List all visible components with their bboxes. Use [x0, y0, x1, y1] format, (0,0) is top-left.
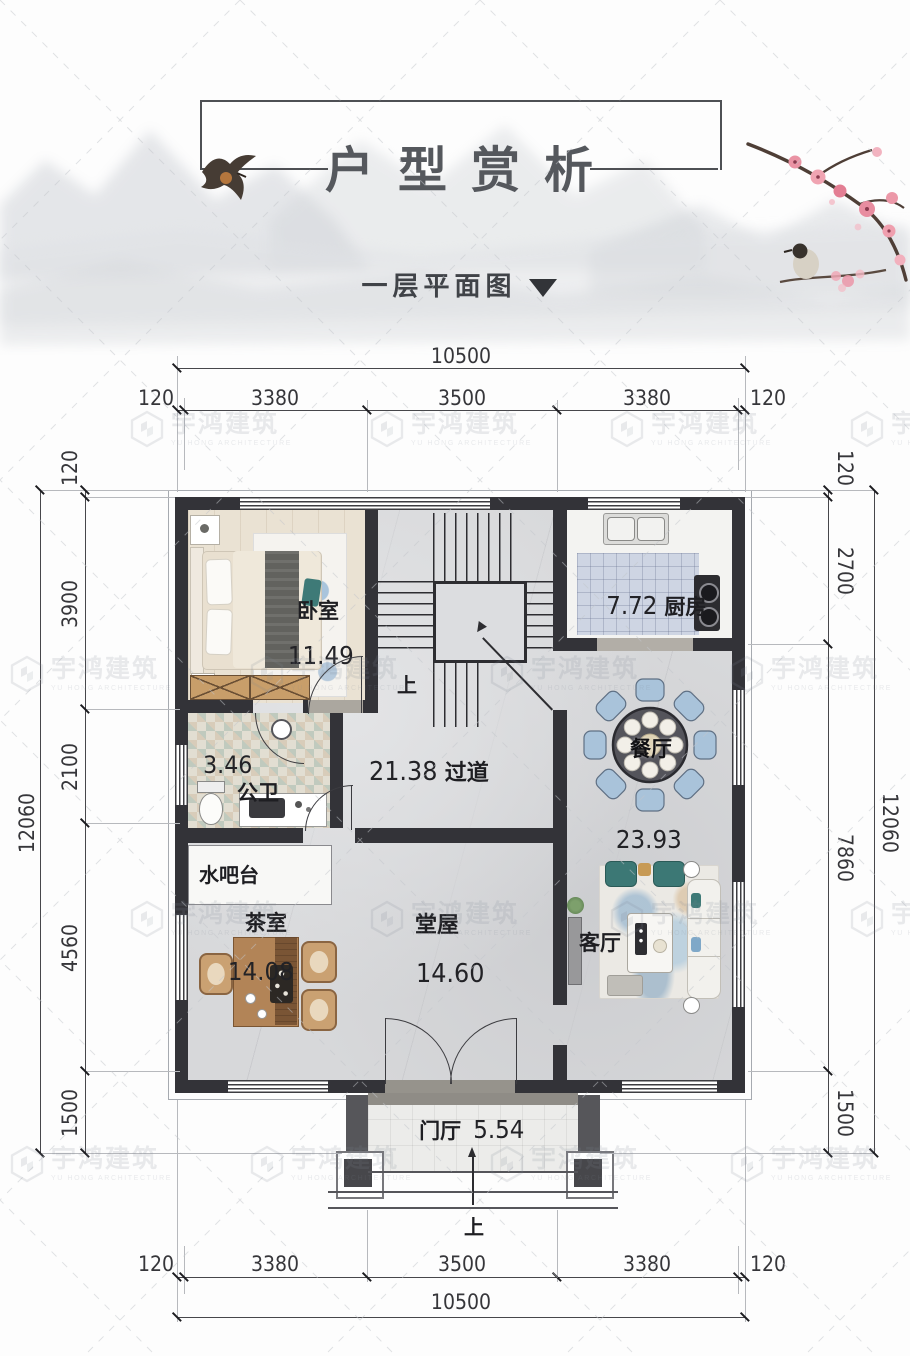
watermark: 宇鸿建筑YU HONG ARCHITECTURE [370, 410, 532, 448]
living-label: 客厅 [579, 927, 621, 957]
wall-bedroom-stairs [365, 510, 378, 713]
window-living-right [732, 882, 745, 1007]
side-table-top [683, 861, 700, 878]
wall-kitchen-bottom-b [693, 638, 745, 651]
flying-bird-illustration [196, 146, 262, 216]
tea-chair-right-bottom [301, 989, 337, 1031]
dim-bottom-seg: 120 [749, 1252, 787, 1276]
bathroom-label: 公卫 [237, 777, 279, 807]
stairs-lower-flight [433, 657, 483, 727]
wall-kitchen-bottom-a [567, 638, 597, 651]
window-living-bottom [622, 1080, 717, 1093]
watermark: 宇鸿建筑YU HONG ARCHITECTURE [610, 410, 772, 448]
tea-room-label: 茶室 [245, 907, 287, 937]
coffee-table-plate [653, 939, 667, 953]
entry-door-left-arc [385, 1018, 452, 1084]
wardrobe [190, 675, 310, 700]
window-dining-right [732, 690, 745, 785]
porch-up-label: 上 [464, 1211, 484, 1240]
perched-bird-illustration [778, 236, 888, 298]
coffee-table-tray [635, 923, 647, 955]
wall-bedroom-bottom-a [188, 700, 253, 713]
window-tearoom-left [175, 915, 188, 1000]
floor-plan: 上 [175, 497, 745, 1093]
dim-left-overall: 12060 [15, 787, 39, 859]
extension-line [557, 1210, 558, 1282]
bed-pillow-2 [205, 609, 233, 656]
window-tearoom-bottom [228, 1080, 328, 1093]
toilet-tank [197, 781, 225, 793]
dim-left-seg: 2100 [58, 742, 82, 792]
porch-threshold [368, 1093, 578, 1105]
dim-line-left-overall [40, 490, 41, 1153]
dim-line-right-segments [828, 490, 829, 1153]
dim-line-bottom-overall [177, 1317, 746, 1318]
dim-top-overall: 10500 [425, 344, 497, 368]
kitchen-area: 7.72 [606, 591, 657, 620]
wall-kitchen-left [553, 510, 567, 651]
dim-left-seg: 1500 [58, 1088, 82, 1138]
porch-column-base-left-core [344, 1159, 372, 1187]
bathroom-area: 3.46 [203, 751, 252, 779]
main-hall-label: 堂屋 [415, 907, 459, 939]
extension-line [85, 709, 180, 710]
kitchen-sink-basin-2 [637, 517, 665, 541]
dim-bottom-seg: 120 [137, 1252, 175, 1276]
tea-room-area: 14.08 [228, 957, 294, 986]
bedroom-door-leaf [361, 656, 363, 713]
down-triangle-icon [529, 279, 557, 297]
armchair-1 [605, 861, 637, 887]
main-hall-area: 14.60 [416, 959, 484, 989]
bedroom-label: 卧室 [297, 595, 339, 625]
window-bathroom-left [175, 745, 188, 805]
extension-line [738, 1246, 739, 1294]
kitchen-sink-basin-1 [607, 517, 635, 541]
dim-left-seg: 120 [58, 443, 82, 493]
extension-line [85, 1071, 180, 1072]
foyer-label-row: 门厅 5.54 [380, 1115, 566, 1145]
dim-right-seg: 1500 [833, 1088, 857, 1138]
hallway-label: 过道 [445, 755, 489, 787]
wardrobe-cell [190, 675, 250, 700]
hallway-area: 21.38 [369, 757, 437, 787]
extension-line [177, 356, 178, 492]
dim-line-right-overall [874, 490, 875, 1153]
watermark: 宇鸿建筑YU HONG ARCHITECTURE [850, 900, 910, 938]
dim-top-seg: 120 [137, 386, 175, 410]
sofa-pillow-blue [691, 937, 701, 952]
dim-top-seg: 3380 [248, 386, 302, 410]
tea-cup [257, 1009, 267, 1019]
bed-pillow-1 [205, 559, 233, 606]
wall-hall-living-b [553, 1045, 567, 1093]
dim-right-seg: 7860 [833, 833, 857, 883]
dim-line-top-overall [177, 368, 746, 369]
subtitle-row: 一层平面图 [200, 266, 718, 303]
vanity-accessory [295, 801, 302, 808]
stairs-upper-flight [433, 513, 521, 581]
extension-line [184, 1246, 185, 1294]
wall-center-a [188, 828, 303, 843]
extension-line [600, 1153, 875, 1154]
extension-line [557, 400, 558, 492]
watermark: 宇鸿建筑YU HONG ARCHITECTURE [730, 1145, 892, 1183]
extension-line [367, 1210, 368, 1282]
extension-line [85, 823, 180, 824]
porch-entry-arrow-head [468, 1147, 476, 1157]
armchair-2 [653, 861, 685, 887]
dim-right-overall: 12060 [878, 787, 902, 859]
porch-entry-arrow-line [472, 1155, 474, 1205]
bedroom-area: 11.49 [288, 641, 354, 670]
extension-line [745, 1100, 746, 1322]
dim-bottom-seg: 3500 [435, 1252, 489, 1276]
extension-line [85, 497, 175, 498]
wall-hall-living-a [553, 828, 567, 1005]
watermark: 宇鸿建筑YU HONG ARCHITECTURE [130, 410, 292, 448]
extension-line [745, 497, 830, 498]
living-bench [607, 975, 643, 996]
watermark: 宇鸿建筑YU HONG ARCHITECTURE [10, 1145, 172, 1183]
foyer-area: 5.54 [473, 1115, 524, 1144]
dim-top-seg: 3380 [620, 386, 674, 410]
subtitle-text: 一层平面图 [361, 271, 516, 301]
watermark: 宇鸿建筑YU HONG ARCHITECTURE [10, 655, 172, 693]
wall-bedroom-bottom-c [363, 700, 378, 713]
hallway-door-leaf [351, 785, 353, 830]
tea-chair-right-top [301, 941, 337, 983]
extension-line [367, 400, 368, 492]
dim-left-seg: 4560 [58, 923, 82, 973]
entry-door-right-arc [450, 1018, 517, 1084]
kitchen-label: 厨房 [664, 591, 706, 621]
extension-line [177, 1100, 178, 1322]
dim-line-top-segments [177, 410, 746, 411]
porch-column-left [346, 1095, 368, 1157]
extension-line [748, 1071, 830, 1072]
window-bedroom-top [240, 497, 490, 510]
dining-label: 餐厅 [620, 733, 682, 763]
wall-center-b [355, 828, 567, 843]
extension-line [748, 644, 830, 645]
nightstand-lamp [200, 524, 209, 533]
water-bar-label: 水吧台 [199, 859, 259, 888]
watermark: 宇鸿建筑YU HONG ARCHITECTURE [730, 655, 892, 693]
dining-area: 23.93 [616, 825, 682, 854]
porch-column-base-right-core [574, 1159, 602, 1187]
dim-left-seg: 3900 [58, 579, 82, 629]
stairs-up-label: 上 [397, 669, 417, 698]
dim-bottom-seg: 3380 [248, 1252, 302, 1276]
dim-bottom-overall: 10500 [425, 1290, 497, 1314]
sofa-pillow-teal [691, 893, 701, 908]
side-table-bottom [683, 997, 700, 1014]
dim-right-seg: 2700 [833, 546, 857, 596]
hallway-label-row: 21.38 过道 [340, 755, 515, 787]
floor-plan-poster: 户型赏析 一层平面图 [0, 0, 910, 1356]
dim-line-bottom-segments [177, 1277, 746, 1278]
window-kitchen-top [588, 497, 680, 510]
watermark: 宇鸿建筑YU HONG ARCHITECTURE [850, 410, 910, 448]
wardrobe-cell [250, 675, 310, 700]
gold-side-table [638, 863, 651, 876]
dim-top-seg: 120 [749, 386, 787, 410]
dim-top-seg: 3500 [435, 386, 489, 410]
plant [567, 897, 584, 914]
tea-cup [245, 993, 256, 1004]
dim-right-seg: 120 [833, 443, 857, 493]
extension-line [745, 356, 746, 492]
kitchen-threshold [597, 638, 693, 651]
toilet-bowl [199, 793, 223, 825]
foyer-label: 门厅 [419, 1115, 461, 1145]
wall-east-mid [553, 710, 567, 828]
porch-column-right [578, 1095, 600, 1157]
stairs-left-winders [378, 581, 433, 657]
entry-porch: 上 门厅 5.54 [340, 1093, 606, 1243]
dim-bottom-seg: 3380 [620, 1252, 674, 1276]
porch-step-edge-3 [328, 1207, 618, 1209]
kitchen-label-row: 7.72 厨房 [575, 591, 735, 621]
